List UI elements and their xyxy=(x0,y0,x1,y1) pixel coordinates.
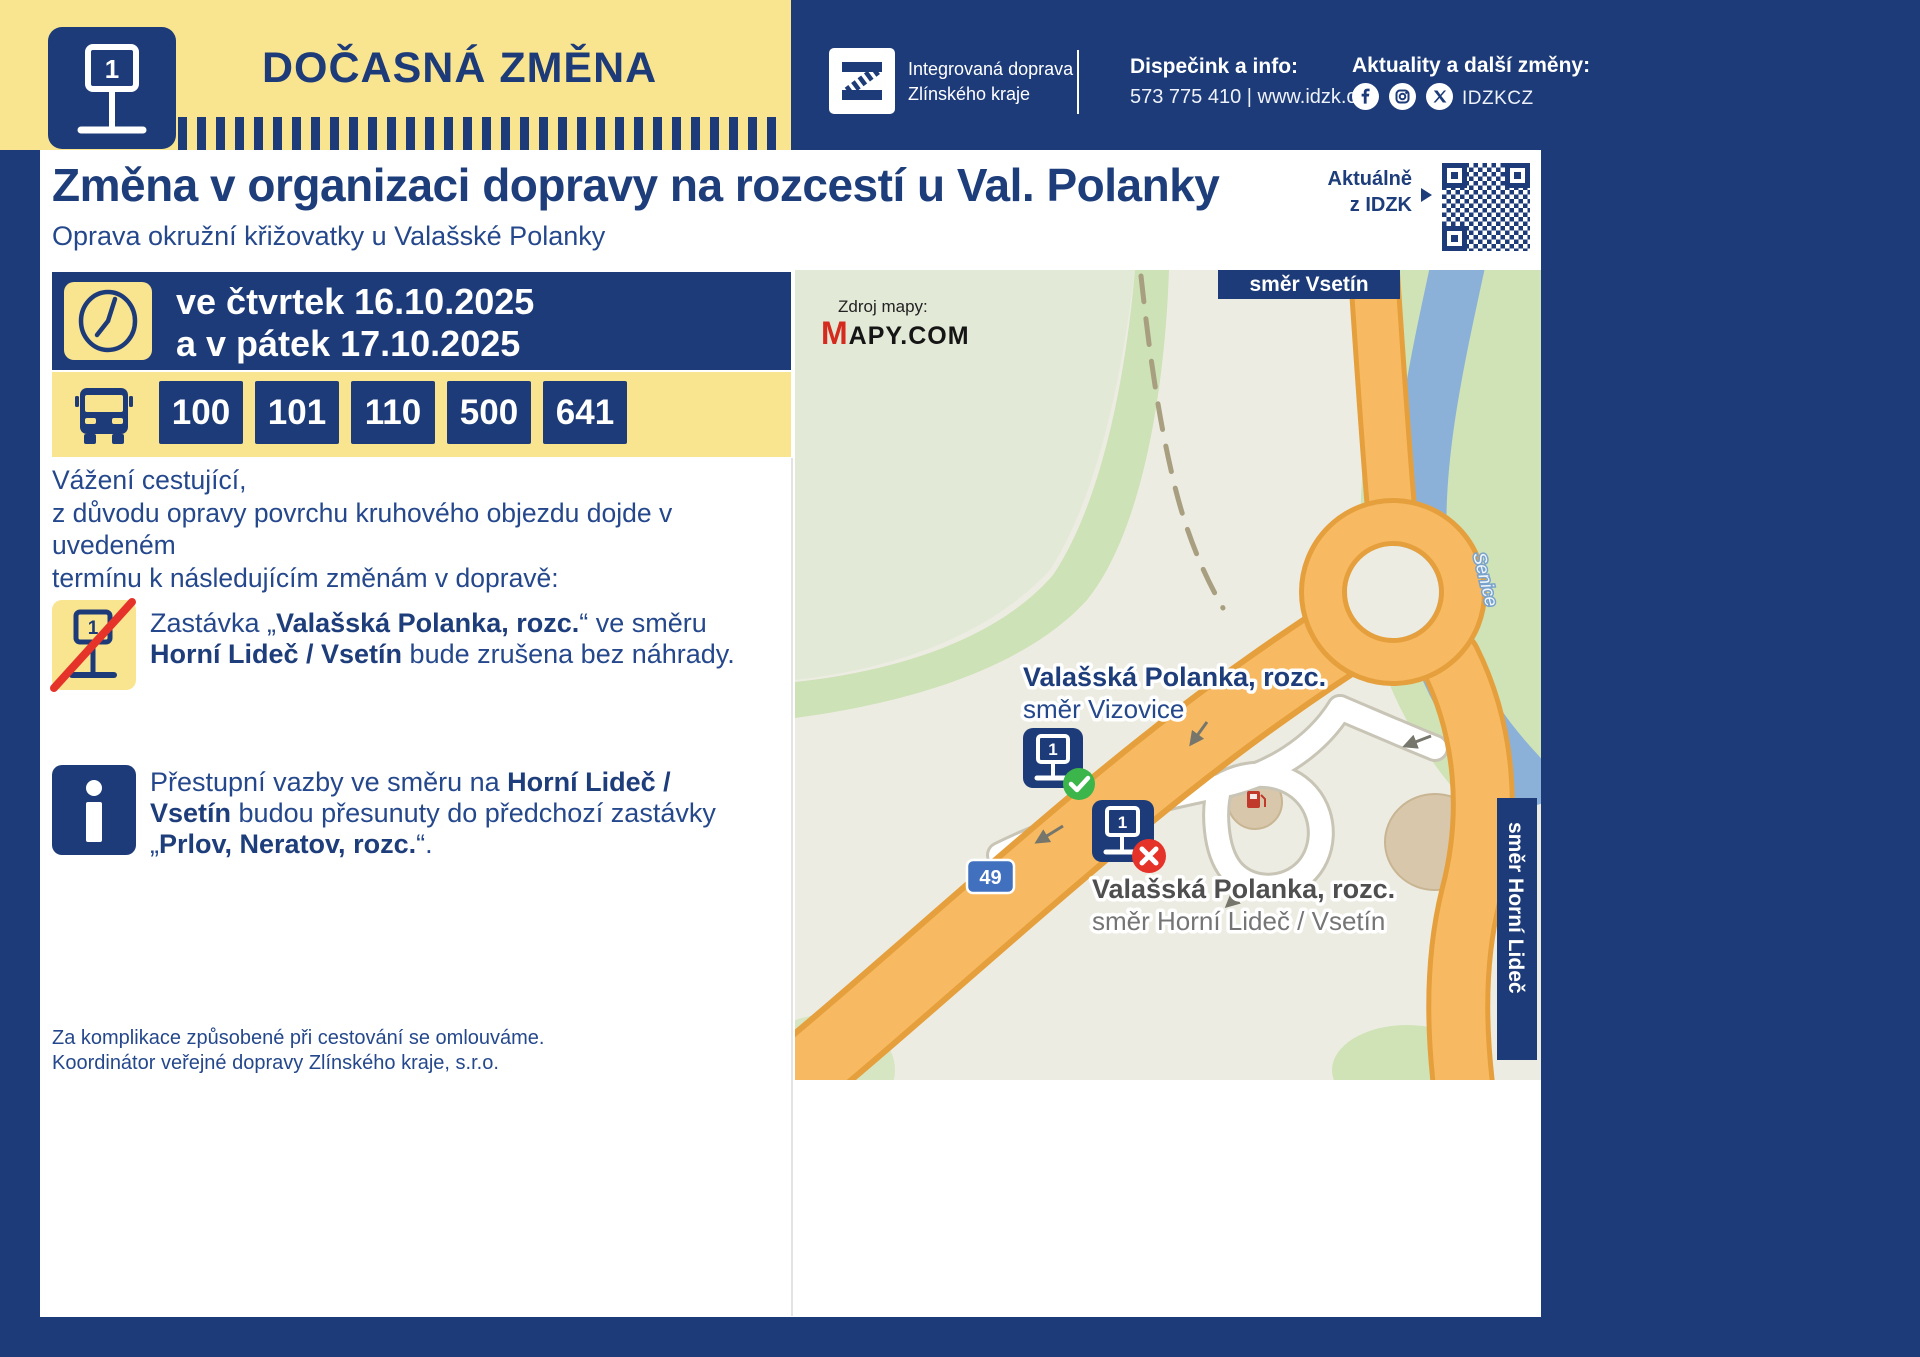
stop-sign-digit: 1 xyxy=(1048,740,1057,759)
updates-label: Aktuality a další změny: xyxy=(1352,54,1590,78)
stop-sign-digit: 1 xyxy=(1118,813,1127,832)
line-badge: 641 xyxy=(543,381,627,444)
salutation: Vážení cestující, xyxy=(52,464,752,497)
decorative-stripes xyxy=(178,117,782,150)
dispatch-phone-url[interactable]: 573 775 410 | www.idzk.cz xyxy=(1130,86,1366,109)
stop-cancelled-name: Valašská Polanka, rozc. xyxy=(1092,874,1395,904)
apology-line1: Za komplikace způsobené při cestování se… xyxy=(52,1026,544,1051)
intro-line1: z důvodu opravy povrchu kruhového objezd… xyxy=(52,497,752,562)
dispatch-label: Dispečink a info: xyxy=(1130,55,1298,79)
situation-map: 49 Senice Valašská Polanka, rozc. směr V… xyxy=(795,270,1541,1080)
cancel-badge-icon xyxy=(1132,839,1166,873)
stop-sign-digit: 1 xyxy=(105,54,119,84)
qr-code[interactable] xyxy=(1437,158,1535,256)
road-number-badge: 49 xyxy=(967,860,1014,893)
line-badge: 100 xyxy=(159,381,243,444)
x-twitter-icon[interactable] xyxy=(1426,83,1453,110)
bus-icon xyxy=(72,386,136,451)
instagram-icon[interactable] xyxy=(1389,83,1416,110)
road-north xyxy=(1373,270,1392,520)
check-badge-icon xyxy=(1063,768,1095,800)
line-badges: 100 101 110 500 641 xyxy=(159,381,627,444)
direction-top-label: směr Vsetín xyxy=(1249,273,1368,296)
line-badge: 500 xyxy=(447,381,531,444)
brand-line1: Integrovaná doprava xyxy=(908,57,1073,82)
social-handle[interactable]: IDZKCZ xyxy=(1462,88,1534,110)
date-line2: a v pátek 17.10.2025 xyxy=(176,323,534,365)
intro-paragraph: Vážení cestující, z důvodu opravy povrch… xyxy=(52,464,752,594)
apology-line2: Koordinátor veřejné dopravy Zlínského kr… xyxy=(52,1051,544,1076)
qr-caption-line1: Aktuálně xyxy=(1300,166,1412,192)
stop-active-name: Valašská Polanka, rozc. xyxy=(1023,662,1326,692)
date-line1: ve čtvrtek 16.10.2025 xyxy=(176,281,534,323)
qr-caption-line2: z IDZK xyxy=(1300,192,1412,218)
column-divider xyxy=(791,458,793,1316)
brand-name: Integrovaná doprava Zlínského kraje xyxy=(908,57,1073,107)
arrow-right-icon xyxy=(1421,188,1432,202)
service-dates: ve čtvrtek 16.10.2025 a v pátek 17.10.20… xyxy=(176,281,534,365)
direction-tab-vsetin: směr Vsetín xyxy=(1218,270,1400,299)
cancelled-stop-icon: 1 xyxy=(52,600,136,690)
poster-title: DOČASNÁ ZMĚNA xyxy=(262,44,657,93)
stop-cancelled-direction: směr Horní Lideč / Vsetín xyxy=(1092,906,1385,936)
facebook-icon[interactable] xyxy=(1352,83,1379,110)
road-southeast xyxy=(1450,660,1483,1080)
bus-stop-sign-icon: 1 xyxy=(48,27,176,149)
direction-tab-horni-lidec: směr Horní Lideč xyxy=(1497,798,1537,1060)
map-source-label: Zdroj mapy: xyxy=(838,297,928,316)
direction-right-label: směr Horní Lideč xyxy=(1504,822,1527,994)
intro-line2: termínu k následujícím změnám v dopravě: xyxy=(52,562,752,595)
poster: 1 DOČASNÁ ZMĚNA Integrovaná doprava Zlín… xyxy=(0,0,1920,1357)
stop-active-direction: směr Vizovice xyxy=(1023,694,1184,724)
cancelled-stop-text: Zastávka „Valašská Polanka, rozc.“ ve sm… xyxy=(150,608,750,670)
road-number: 49 xyxy=(979,867,1001,889)
line-badge: 101 xyxy=(255,381,339,444)
brand-line2: Zlínského kraje xyxy=(908,82,1073,107)
header-divider xyxy=(1077,50,1079,114)
info-icon xyxy=(52,765,136,855)
qr-caption: Aktuálně z IDZK xyxy=(1300,166,1412,218)
clock-icon xyxy=(64,282,152,360)
page-subtitle: Oprava okružní křižovatky u Valašské Pol… xyxy=(52,221,605,252)
line-badge: 110 xyxy=(351,381,435,444)
roundabout xyxy=(1323,522,1463,662)
page-title: Změna v organizaci dopravy na rozcestí u… xyxy=(52,158,1352,212)
apology-note: Za komplikace způsobené při cestování se… xyxy=(52,1026,544,1076)
idzk-logo xyxy=(829,48,895,114)
transfer-info-text: Přestupní vazby ve směru na Horní Lideč … xyxy=(150,767,755,860)
